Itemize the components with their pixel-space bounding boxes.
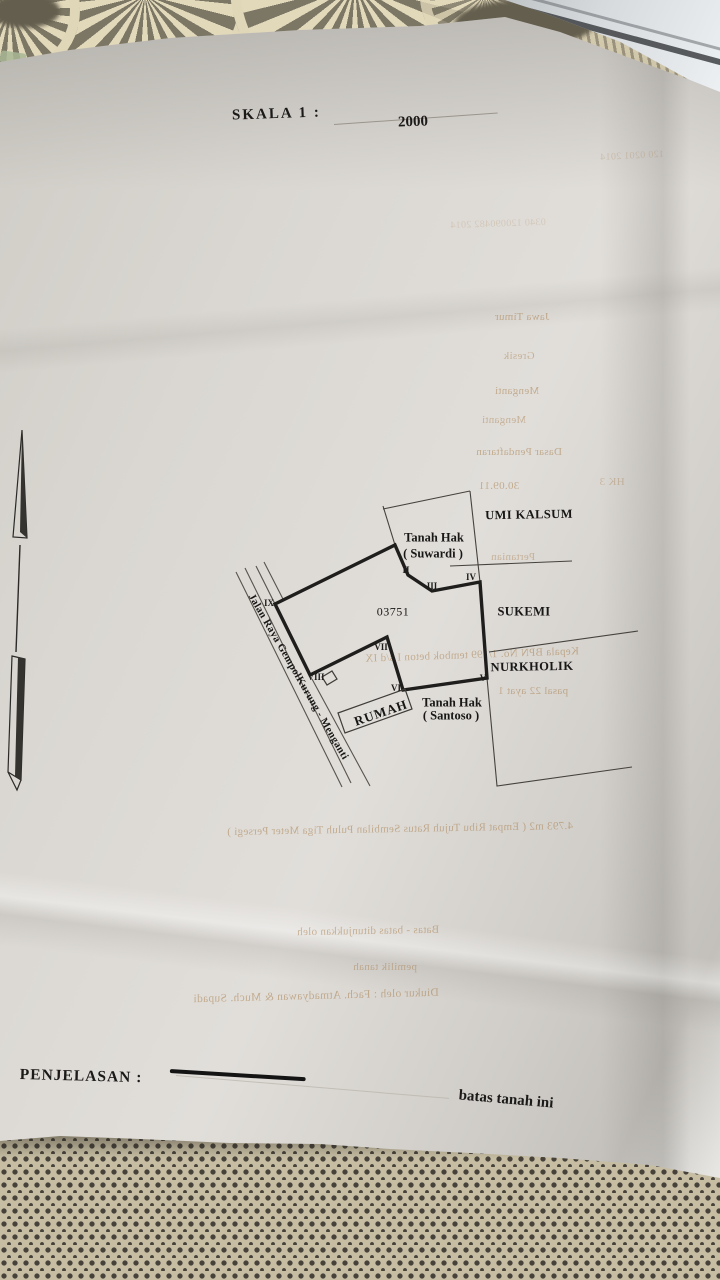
neighbor-label-sukemi: SUKEMI: [497, 605, 550, 620]
vertex-label: VI: [391, 683, 401, 693]
vertex-label: IV: [466, 572, 477, 582]
owner-label-santoso-line2: ( Santoso ): [423, 709, 479, 724]
scale-label: SKALA 1 :: [232, 104, 321, 124]
vertex-label: III: [427, 581, 438, 591]
legend-title: PENJELASAN :: [20, 1066, 143, 1087]
survey-paper: 120 0201 2014 0340 120090482 2014 Jawa T…: [0, 0, 720, 1280]
photo-of-survey-document: 120 0201 2014 0340 120090482 2014 Jawa T…: [0, 0, 720, 1280]
parcel-number: 03751: [377, 605, 410, 620]
vertex-label: V: [480, 673, 487, 683]
owner-label-suwardi-line2: ( Suwardi ): [403, 547, 463, 562]
vertex-label: VII: [374, 642, 388, 652]
owner-label-suwardi-line1: Tanah Hak: [404, 531, 464, 546]
scale-value: 2000: [398, 113, 429, 131]
parcel-map-drawing: II III IV V VI VII VIII IX: [0, 0, 720, 1280]
neighbor-label-nurkholik: NURKHOLIK: [490, 659, 573, 675]
vertex-label: VIII: [307, 672, 325, 682]
vertex-label: IX: [264, 598, 275, 608]
vertex-label: II: [402, 565, 410, 575]
north-arrow-icon: [8, 430, 27, 790]
neighbor-label-umi-kalsum: UMI KALSUM: [485, 507, 573, 524]
